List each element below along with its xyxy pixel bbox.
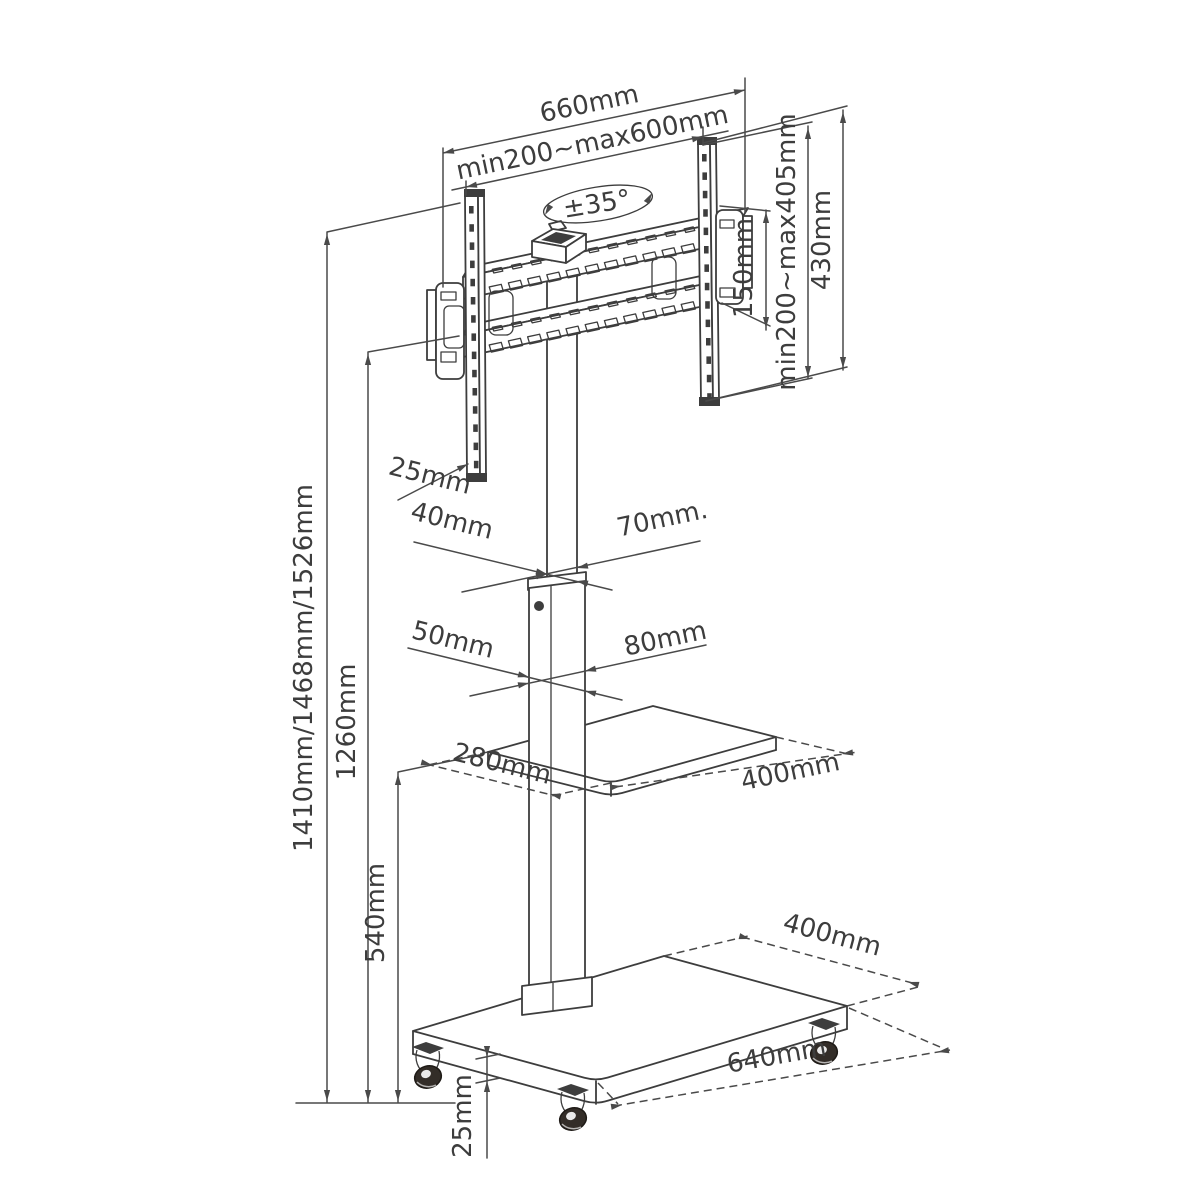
- base-edge-thickness-label: 25mm: [448, 1074, 478, 1158]
- overall-heights-label: 1410mm/1468mm/1526mm: [289, 484, 319, 852]
- adapter-plate-height-label: 150mm: [729, 218, 759, 318]
- lower-column-tube: [529, 581, 585, 1003]
- locking-screw: [534, 601, 544, 611]
- vesa-height-range-label: min200~max405mm: [772, 113, 802, 390]
- lower-column-depth-label: 50mm: [409, 616, 498, 665]
- column-height-label: 1260mm: [332, 664, 362, 781]
- swivel-angle-label: ±35°: [561, 184, 633, 224]
- tv-stand-diagram: ±35°: [0, 0, 1200, 1200]
- column: [522, 259, 592, 1015]
- upper-column-depth-label: 40mm: [408, 497, 497, 546]
- left-vesa-strip: [427, 189, 487, 482]
- shelf-width-label: 400mm: [738, 747, 842, 797]
- caster-left: [412, 1042, 444, 1091]
- shelf-height-label: 540mm: [361, 863, 391, 963]
- lower-column-width-label: 80mm: [621, 616, 709, 663]
- technical-drawing-page: ±35°: [0, 0, 1200, 1200]
- bracket-depth-label: 25mm: [386, 452, 475, 501]
- upper-column-width-label: 70mm.: [614, 495, 710, 543]
- base-depth-label: 400mm: [780, 908, 885, 963]
- bracket-height-label: 430mm: [807, 190, 837, 290]
- swivel-indicator: ±35°: [541, 179, 655, 230]
- caster-front: [557, 1084, 589, 1133]
